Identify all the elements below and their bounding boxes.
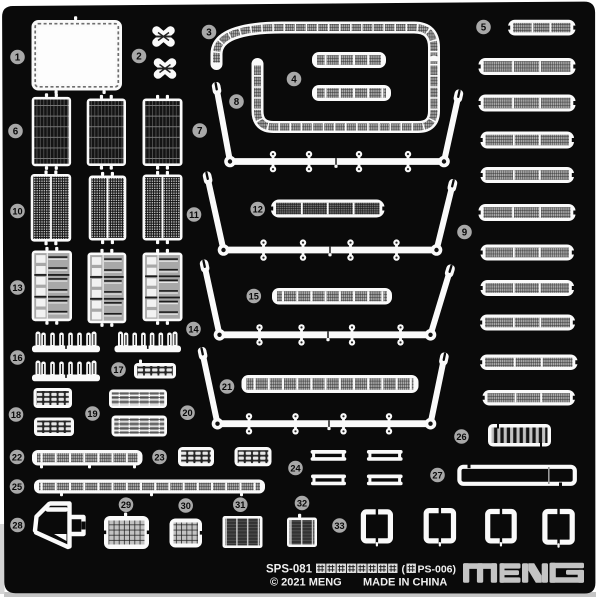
svg-text:9: 9: [462, 227, 468, 238]
svg-text:1: 1: [15, 52, 21, 63]
svg-text:11: 11: [189, 210, 199, 220]
svg-text:17: 17: [113, 365, 123, 375]
svg-text:SPS-081: SPS-081: [266, 564, 313, 576]
svg-text:28: 28: [12, 520, 22, 530]
svg-text:© 2021 MENG: © 2021 MENG: [270, 576, 342, 588]
svg-text:19: 19: [87, 409, 97, 419]
svg-text:33: 33: [334, 521, 344, 531]
svg-text:23: 23: [154, 452, 164, 462]
svg-text:32: 32: [297, 498, 307, 508]
svg-text:29: 29: [121, 500, 131, 510]
svg-text:27: 27: [432, 470, 442, 480]
svg-text:5: 5: [481, 22, 487, 33]
svg-text:7: 7: [197, 126, 203, 137]
svg-text:PS-006): PS-006): [418, 563, 457, 575]
svg-text:(: (: [402, 563, 406, 575]
svg-text:2: 2: [136, 51, 142, 62]
svg-text:14: 14: [188, 324, 199, 334]
svg-text:22: 22: [12, 452, 22, 462]
svg-text:15: 15: [249, 291, 259, 301]
svg-text:10: 10: [12, 206, 22, 216]
svg-text:6: 6: [13, 126, 19, 137]
svg-text:30: 30: [181, 501, 191, 511]
svg-text:21: 21: [222, 382, 232, 392]
svg-text:25: 25: [12, 482, 22, 492]
svg-text:8: 8: [234, 97, 240, 108]
svg-text:13: 13: [12, 283, 22, 293]
svg-text:4: 4: [291, 74, 297, 85]
svg-text:20: 20: [182, 408, 192, 418]
svg-text:26: 26: [456, 432, 466, 442]
svg-text:31: 31: [235, 500, 245, 510]
svg-text:12: 12: [253, 204, 263, 214]
svg-text:MADE IN CHINA: MADE IN CHINA: [363, 576, 447, 588]
svg-text:24: 24: [290, 463, 301, 473]
svg-text:3: 3: [206, 27, 212, 38]
svg-text:16: 16: [12, 353, 22, 363]
svg-text:18: 18: [11, 410, 21, 420]
